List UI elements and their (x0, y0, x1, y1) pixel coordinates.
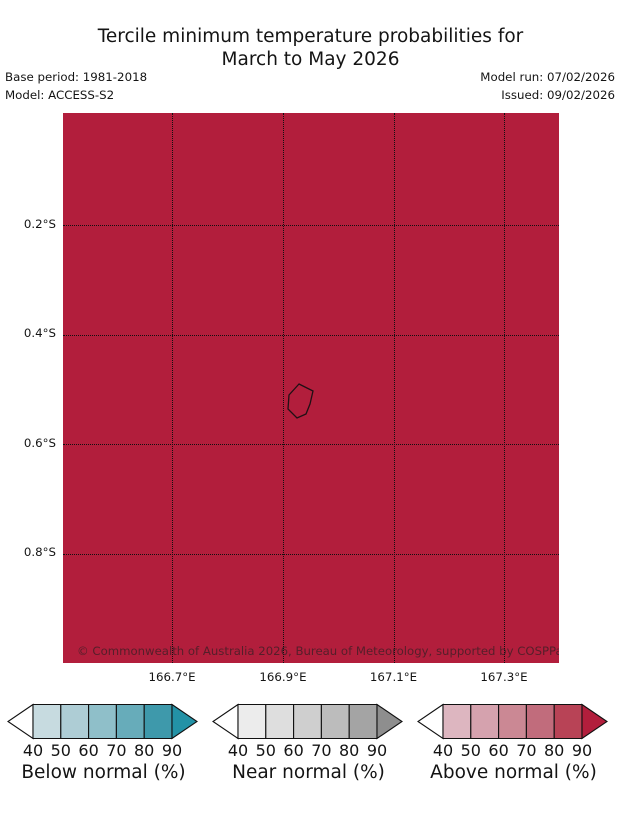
colorbar-segment (238, 705, 266, 739)
x-axis-tick-label: 167.3°E (462, 670, 546, 684)
colorbar-segment (116, 705, 144, 739)
y-axis-tick-label: 0.2°S (0, 217, 56, 231)
island-outline-polygon (288, 384, 313, 418)
x-axis-tick-label: 166.7°E (130, 670, 214, 684)
legend-colorbars: 405060708090Below normal (%)405060708090… (0, 703, 621, 798)
model-label: Model: ACCESS-S2 (5, 87, 147, 105)
colorbar-tick-labels: 405060708090 (0, 741, 207, 760)
copyright-text: © Commonwealth of Australia 2026, Bureau… (77, 644, 559, 658)
over-arrow (582, 705, 607, 739)
title-line-1: Tercile minimum temperature probabilitie… (0, 25, 621, 48)
over-arrow (377, 705, 402, 739)
map-plot: © Commonwealth of Australia 2026, Bureau… (63, 113, 559, 663)
colorbar-segment (144, 705, 172, 739)
colorbar-gradient-near-normal (208, 703, 413, 740)
colorbar-segment (526, 705, 554, 739)
colorbar-segment (471, 705, 499, 739)
colorbar-caption-above-normal: Above normal (%) (410, 762, 617, 783)
island-coastline (63, 113, 559, 663)
colorbar-gradient-above-normal (413, 703, 618, 740)
title-line-2: March to May 2026 (0, 48, 621, 71)
x-axis-tick-label: 166.9°E (241, 670, 325, 684)
colorbar-tick-label: 90 (360, 741, 394, 760)
colorbar-tick-labels: 405060708090 (205, 741, 412, 760)
meta-left: Base period: 1981-2018 Model: ACCESS-S2 (5, 69, 147, 104)
colorbar-segment (89, 705, 117, 739)
colorbar-below-normal: 405060708090Below normal (%) (0, 703, 207, 793)
under-arrow (418, 705, 443, 739)
colorbar-segment (321, 705, 349, 739)
under-arrow (8, 705, 33, 739)
colorbar-gradient-below-normal (3, 703, 208, 740)
colorbar-tick-label: 90 (155, 741, 189, 760)
y-axis-tick-label: 0.6°S (0, 436, 56, 450)
colorbar-segment (554, 705, 582, 739)
colorbar-segment (33, 705, 61, 739)
colorbar-above-normal: 405060708090Above normal (%) (410, 703, 617, 793)
colorbar-tick-label: 90 (565, 741, 599, 760)
colorbar-segment (349, 705, 377, 739)
over-arrow (172, 705, 197, 739)
forecast-figure: Tercile minimum temperature probabilitie… (0, 0, 621, 839)
colorbar-segment (266, 705, 294, 739)
colorbar-caption-near-normal: Near normal (%) (205, 762, 412, 783)
meta-right: Model run: 07/02/2026 Issued: 09/02/2026 (480, 69, 615, 104)
page-title: Tercile minimum temperature probabilitie… (0, 25, 621, 71)
y-axis-tick-label: 0.8°S (0, 545, 56, 559)
colorbar-segment (443, 705, 471, 739)
issued-label: Issued: 09/02/2026 (480, 87, 615, 105)
base-period-label: Base period: 1981-2018 (5, 69, 147, 87)
colorbar-caption-below-normal: Below normal (%) (0, 762, 207, 783)
model-run-label: Model run: 07/02/2026 (480, 69, 615, 87)
y-axis-tick-label: 0.4°S (0, 326, 56, 340)
colorbar-segment (294, 705, 322, 739)
colorbar-near-normal: 405060708090Near normal (%) (205, 703, 412, 793)
colorbar-segment (61, 705, 89, 739)
under-arrow (213, 705, 238, 739)
colorbar-segment (499, 705, 527, 739)
colorbar-tick-labels: 405060708090 (410, 741, 617, 760)
x-axis-tick-label: 167.1°E (351, 670, 435, 684)
